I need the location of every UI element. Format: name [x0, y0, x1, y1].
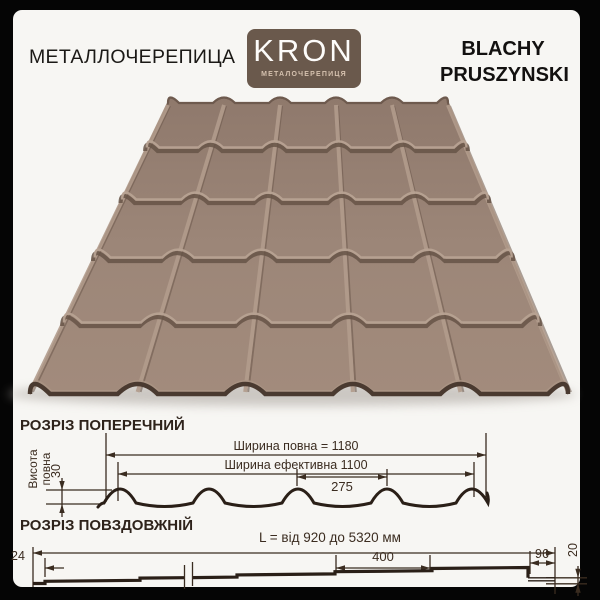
long-section-title: РОЗРІЗ ПОВЗДОВЖНІЙ [20, 517, 193, 534]
page-title: МЕТАЛЛОЧЕРЕПИЦА [29, 46, 235, 69]
length-dim-label: L = від 920 до 5320 мм [205, 530, 455, 545]
product-card: { "frame": { "bg": "#050505", "panel_bg"… [0, 0, 600, 600]
kron-logo-text: KRON [247, 33, 361, 69]
brand-name: BLACHY PRUSZYNSKI [440, 36, 566, 88]
brand-line1: BLACHY [440, 36, 566, 62]
end-module-dim-label: 96 [526, 547, 558, 561]
longitudinal-section-drawing [33, 547, 587, 596]
brand-line2: PRUSZYNSKI [440, 62, 566, 88]
step-height-dim-label: 20 [566, 538, 580, 562]
full-width-dim-label: Ширина повна = 1180 [146, 439, 446, 453]
effective-width-dim-label: Ширина ефективна 1100 [146, 458, 446, 472]
module-width-dim-label: 275 [318, 479, 366, 494]
module-length-dim-label: 400 [351, 549, 415, 564]
kron-logo-subtitle: МЕТАЛОЧЕРЕПИЦЯ [247, 71, 361, 78]
technical-drawing-canvas [0, 0, 600, 600]
height-value-label: 30 [49, 456, 63, 486]
edge-offset-dim-label: 24 [11, 549, 25, 563]
kron-logo: KRON МЕТАЛОЧЕРЕПИЦЯ [247, 29, 361, 88]
roof-illustration [8, 98, 576, 407]
